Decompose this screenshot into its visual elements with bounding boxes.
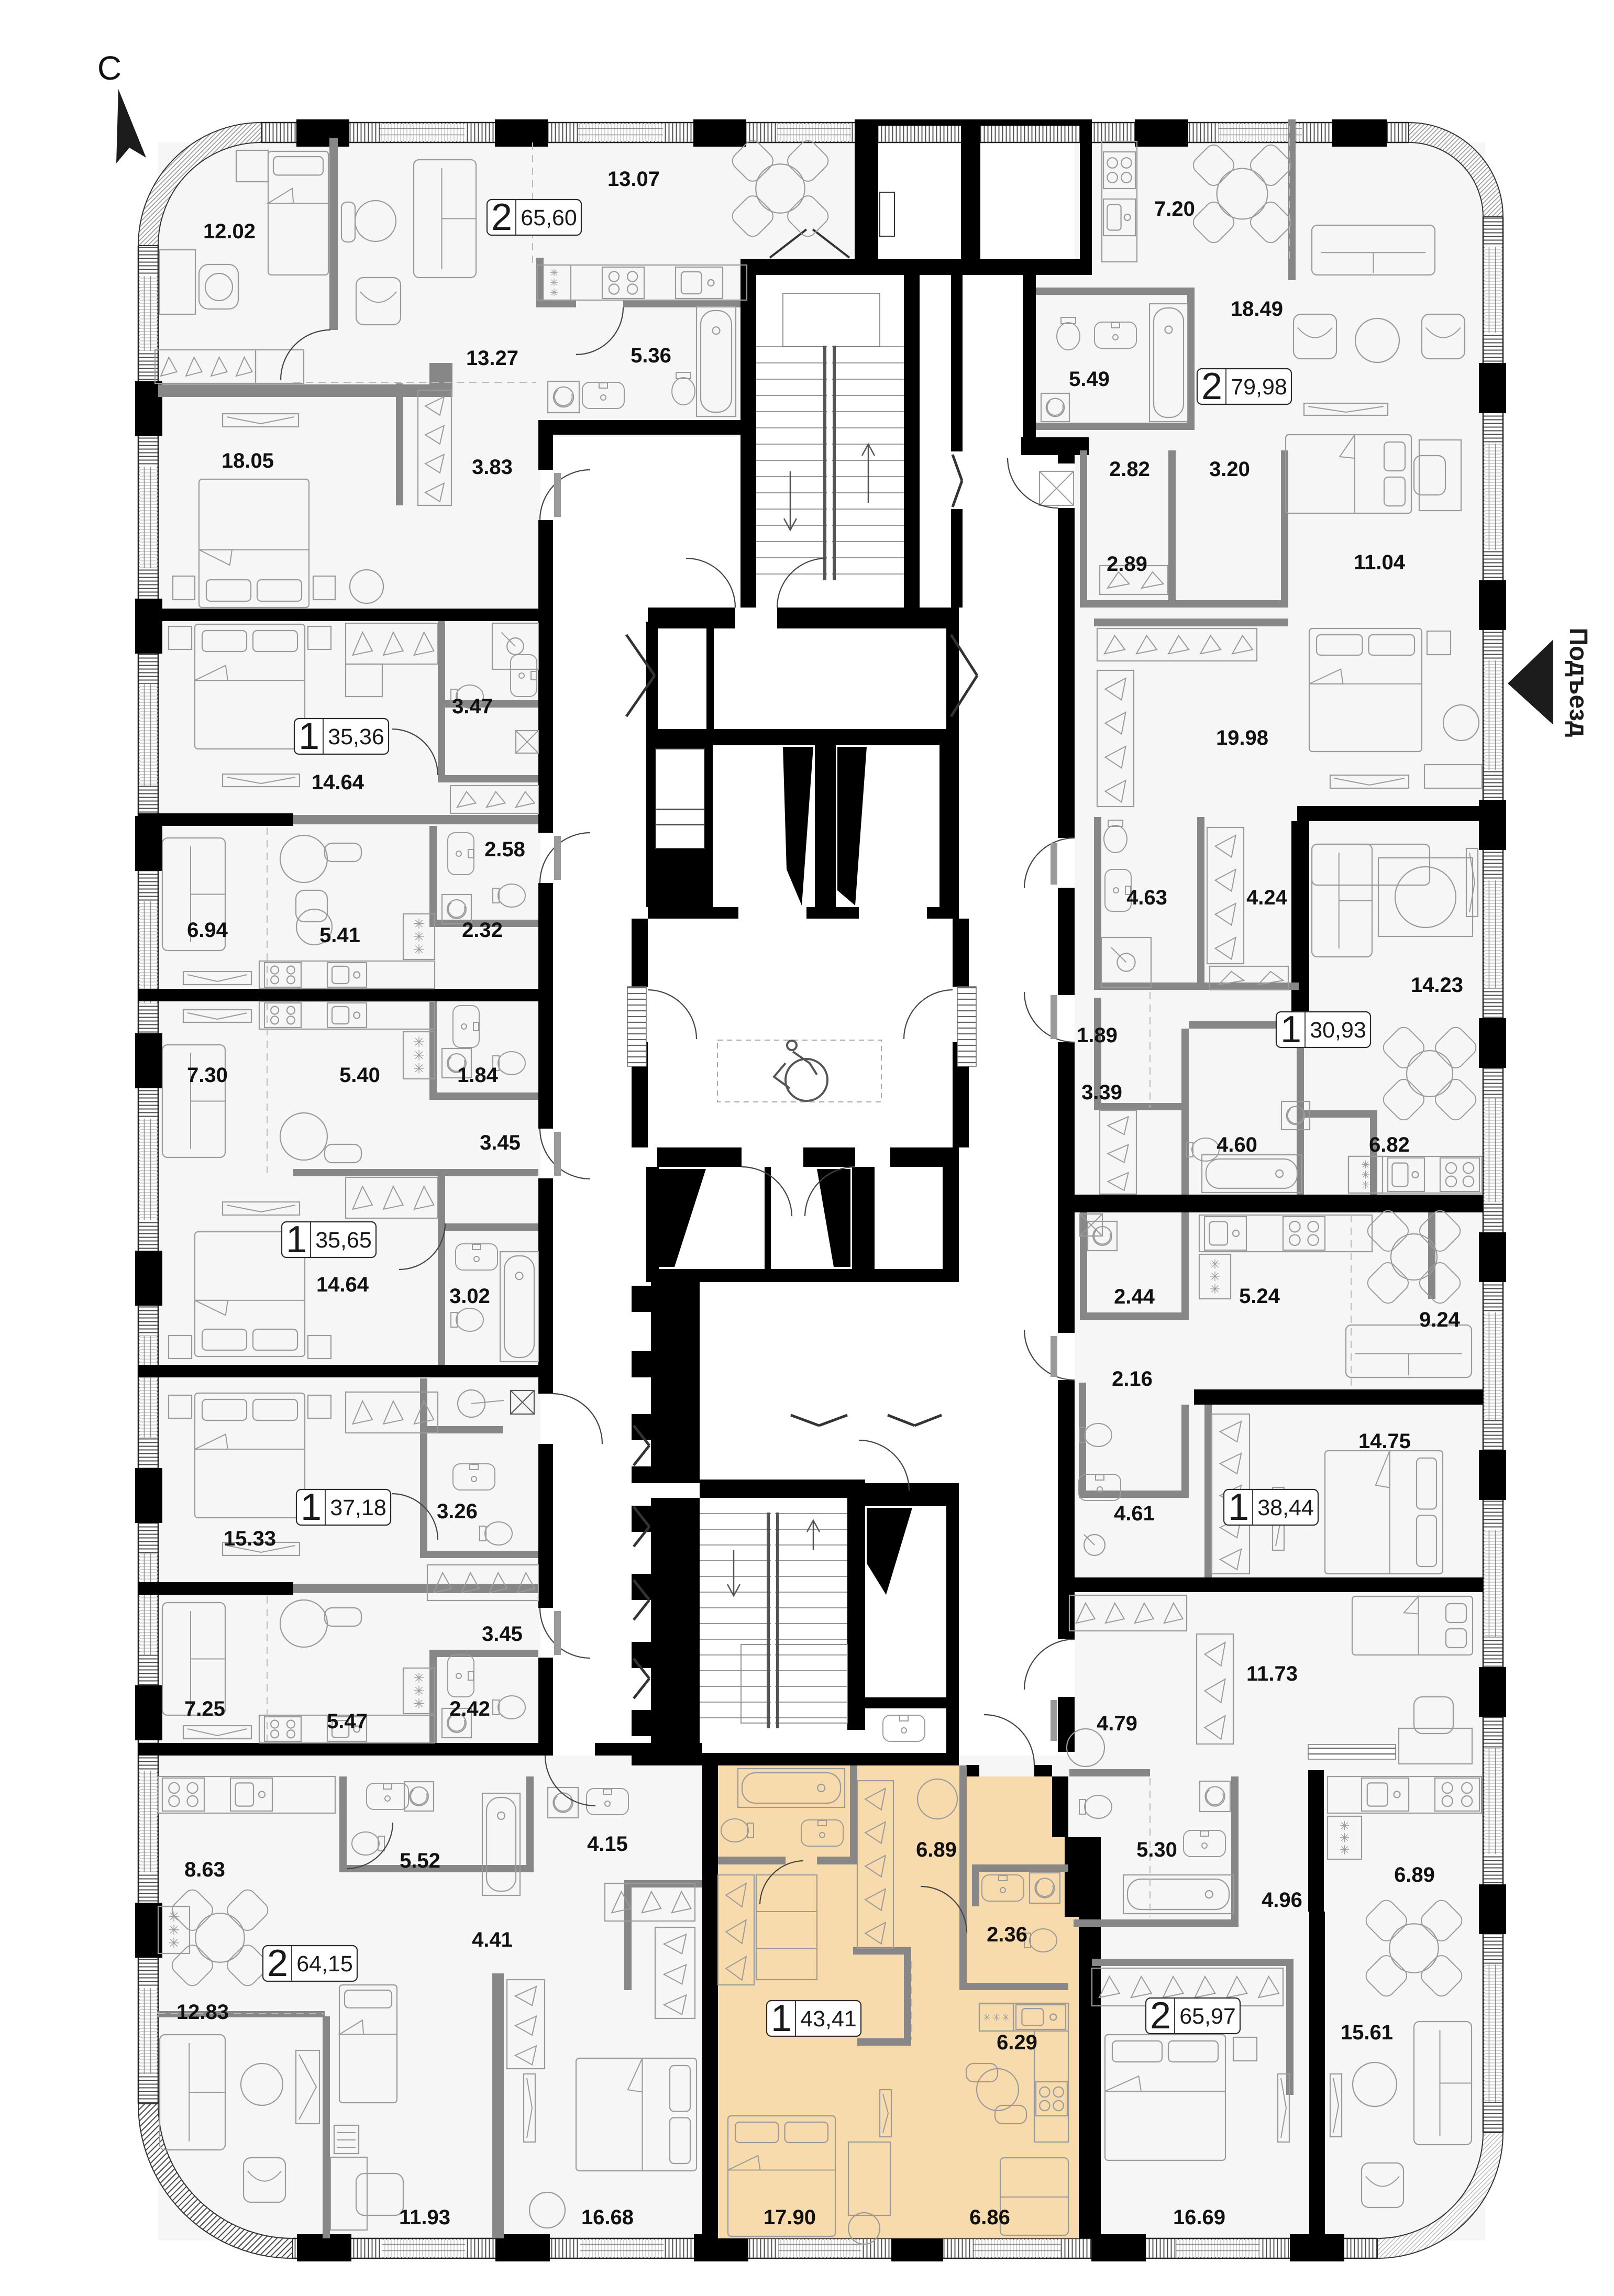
svg-text:79,98: 79,98	[1231, 374, 1287, 400]
svg-text:1: 1	[301, 1486, 322, 1528]
svg-text:65,60: 65,60	[521, 205, 577, 230]
svg-text:1: 1	[1280, 1009, 1301, 1051]
svg-text:18.05: 18.05	[222, 449, 274, 472]
svg-text:2: 2	[267, 1942, 288, 1984]
svg-text:✳: ✳	[168, 1936, 180, 1951]
svg-text:4.15: 4.15	[587, 1833, 628, 1856]
svg-text:6.89: 6.89	[1394, 1863, 1435, 1886]
svg-text:2: 2	[1150, 1995, 1171, 2037]
svg-text:16.69: 16.69	[1173, 2206, 1225, 2229]
svg-text:5.41: 5.41	[319, 924, 360, 947]
svg-text:13.27: 13.27	[466, 347, 518, 370]
svg-text:2.82: 2.82	[1109, 458, 1150, 481]
svg-text:3.26: 3.26	[437, 1500, 478, 1523]
svg-text:5.47: 5.47	[327, 1710, 368, 1733]
svg-text:2.32: 2.32	[462, 919, 503, 942]
svg-text:5.24: 5.24	[1239, 1285, 1280, 1308]
svg-text:2.89: 2.89	[1107, 553, 1147, 576]
svg-text:✳: ✳	[413, 942, 425, 957]
svg-text:✳: ✳	[413, 1061, 425, 1077]
svg-text:6.86: 6.86	[969, 2206, 1010, 2229]
svg-text:6.94: 6.94	[187, 919, 228, 942]
svg-text:✳: ✳	[1361, 1179, 1370, 1191]
svg-text:7.25: 7.25	[184, 1697, 225, 1720]
svg-text:15.61: 15.61	[1341, 2021, 1393, 2044]
svg-text:9.24: 9.24	[1419, 1308, 1461, 1331]
svg-text:1: 1	[771, 1997, 792, 2039]
svg-text:2.16: 2.16	[1112, 1367, 1153, 1390]
svg-text:7.30: 7.30	[187, 1064, 228, 1087]
svg-text:5.52: 5.52	[400, 1849, 440, 1872]
svg-text:2.42: 2.42	[449, 1697, 490, 1720]
svg-text:✳: ✳	[982, 2013, 991, 2024]
svg-text:1.89: 1.89	[1077, 1024, 1118, 1047]
svg-text:37,18: 37,18	[330, 1495, 386, 1520]
svg-text:4.96: 4.96	[1262, 1889, 1302, 1912]
svg-text:11.93: 11.93	[399, 2206, 450, 2229]
svg-text:14.23: 14.23	[1411, 974, 1463, 997]
svg-text:6.29: 6.29	[997, 2031, 1037, 2054]
svg-text:4.60: 4.60	[1217, 1133, 1257, 1156]
svg-text:3.20: 3.20	[1209, 458, 1250, 481]
svg-text:14.75: 14.75	[1358, 1430, 1411, 1453]
svg-text:16.68: 16.68	[581, 2206, 634, 2229]
svg-text:✳: ✳	[550, 287, 559, 299]
svg-text:6.82: 6.82	[1369, 1133, 1410, 1156]
svg-text:7.20: 7.20	[1154, 197, 1195, 220]
svg-text:✳: ✳	[1210, 1282, 1221, 1297]
svg-text:65,97: 65,97	[1179, 2004, 1236, 2029]
svg-text:4.24: 4.24	[1246, 886, 1288, 909]
svg-text:3.45: 3.45	[480, 1131, 521, 1154]
svg-text:✳: ✳	[992, 2013, 1001, 2024]
svg-text:38,44: 38,44	[1257, 1495, 1314, 1520]
svg-text:✳: ✳	[413, 1696, 425, 1712]
svg-text:12.02: 12.02	[203, 220, 256, 243]
svg-text:64,15: 64,15	[296, 1951, 353, 1977]
svg-text:3.47: 3.47	[452, 695, 493, 718]
svg-text:4.61: 4.61	[1114, 1502, 1155, 1525]
svg-text:5.40: 5.40	[339, 1064, 380, 1087]
svg-text:2.58: 2.58	[484, 838, 525, 861]
svg-text:30,93: 30,93	[1310, 1018, 1366, 1043]
svg-text:12.83: 12.83	[176, 2001, 229, 2024]
svg-text:4.79: 4.79	[1097, 1712, 1137, 1735]
svg-text:18.49: 18.49	[1231, 297, 1283, 321]
svg-text:8.63: 8.63	[184, 1858, 225, 1881]
svg-text:19.98: 19.98	[1216, 726, 1268, 749]
svg-text:3.02: 3.02	[449, 1285, 490, 1308]
svg-text:6.89: 6.89	[916, 1838, 957, 1861]
svg-text:11.04: 11.04	[1354, 551, 1406, 574]
svg-text:35,36: 35,36	[328, 724, 384, 749]
svg-text:✳: ✳	[1339, 1843, 1350, 1857]
svg-text:3.39: 3.39	[1081, 1081, 1122, 1104]
svg-text:2.44: 2.44	[1114, 1285, 1155, 1308]
svg-text:5.36: 5.36	[631, 344, 671, 367]
svg-text:4.41: 4.41	[472, 1928, 513, 1951]
svg-text:4.63: 4.63	[1126, 886, 1167, 909]
svg-text:14.64: 14.64	[316, 1273, 369, 1296]
svg-text:2.36: 2.36	[987, 1923, 1027, 1946]
svg-text:13.07: 13.07	[607, 168, 660, 191]
svg-text:14.64: 14.64	[312, 771, 364, 794]
svg-text:3.83: 3.83	[472, 456, 513, 479]
svg-text:С: С	[97, 49, 121, 87]
svg-text:1: 1	[299, 715, 319, 757]
svg-text:3.45: 3.45	[482, 1622, 523, 1646]
svg-text:✳: ✳	[1002, 2013, 1010, 2024]
svg-text:15.33: 15.33	[224, 1527, 276, 1550]
svg-text:17.90: 17.90	[764, 2206, 816, 2229]
svg-text:2: 2	[1201, 366, 1222, 407]
svg-text:Подъезд: Подъезд	[1564, 627, 1592, 737]
svg-text:43,41: 43,41	[800, 2006, 857, 2032]
svg-text:35,65: 35,65	[315, 1228, 372, 1253]
svg-text:5.30: 5.30	[1136, 1838, 1177, 1861]
svg-text:2: 2	[491, 196, 512, 238]
svg-text:1.84: 1.84	[457, 1064, 499, 1087]
svg-text:5.49: 5.49	[1069, 368, 1110, 391]
svg-text:1: 1	[286, 1219, 307, 1261]
svg-text:1: 1	[1228, 1486, 1249, 1528]
svg-text:11.73: 11.73	[1246, 1662, 1298, 1685]
